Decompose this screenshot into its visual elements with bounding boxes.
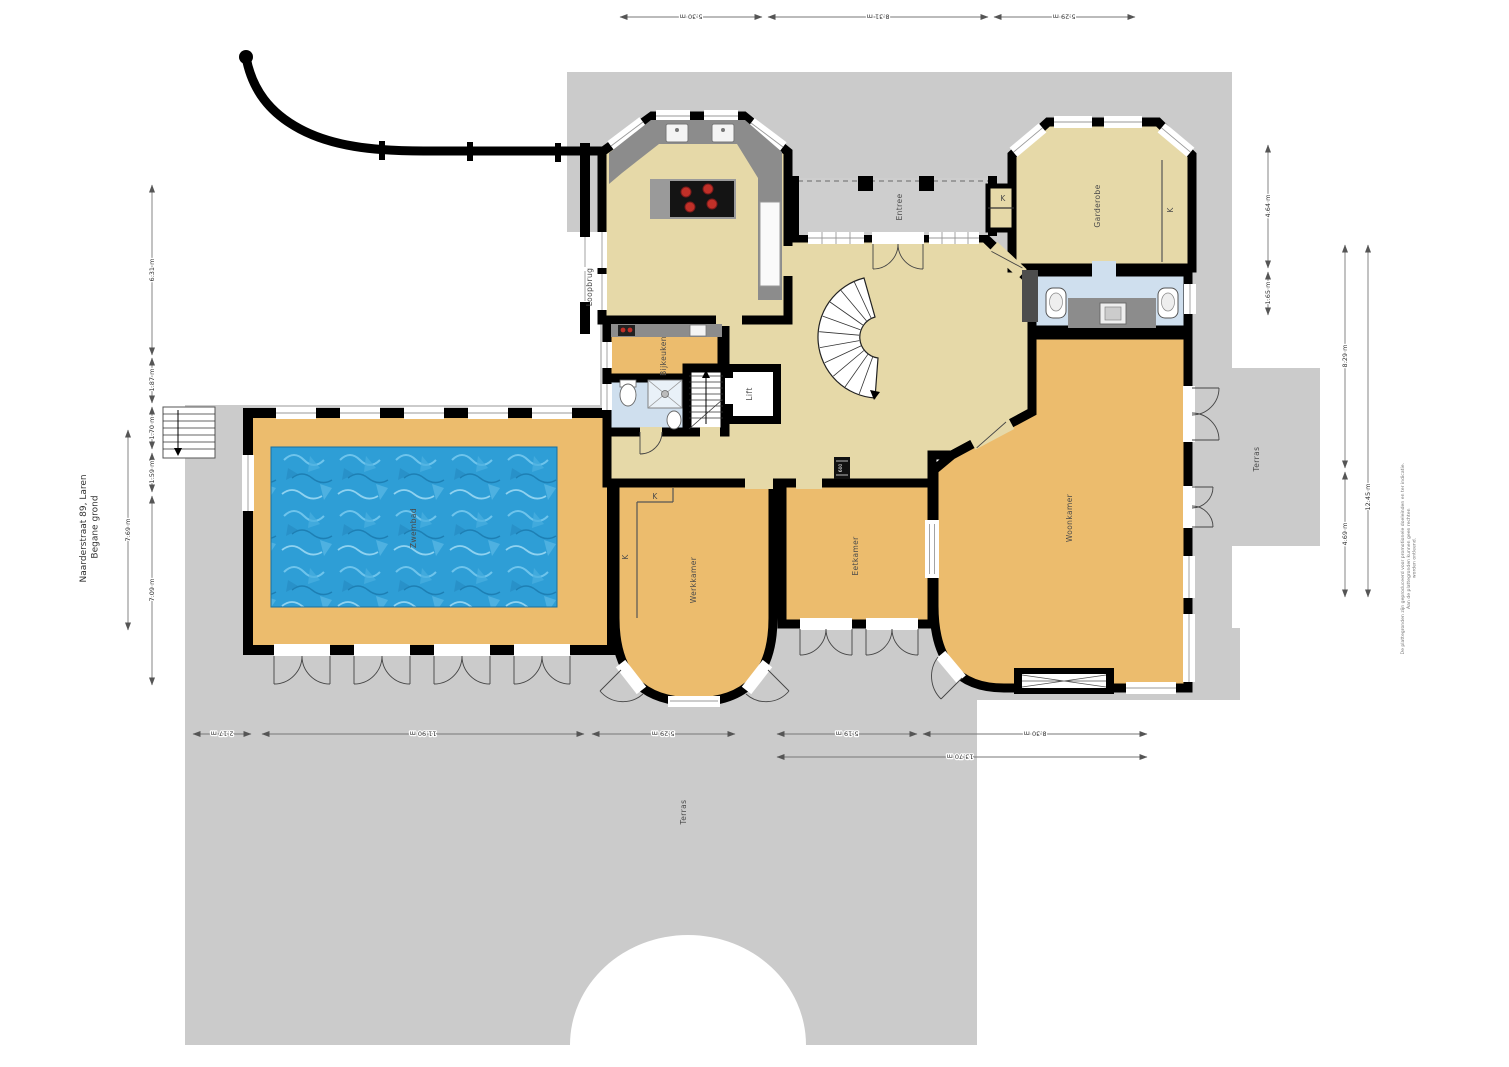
entree-window-left xyxy=(808,232,864,244)
label-loopbrug: Loopbrug xyxy=(585,268,594,307)
label-terras-right: Terras xyxy=(1252,447,1261,473)
dim-top-3: 5.29 m xyxy=(1053,13,1076,21)
dim-bottom-5: 8.30 m xyxy=(1024,730,1047,738)
label-garderobe: Garderobe xyxy=(1093,184,1102,227)
room-garderobe xyxy=(1012,122,1192,268)
fireplace xyxy=(1014,668,1114,694)
porch-column xyxy=(919,176,934,191)
dim-bottom-4: 5.19 m xyxy=(836,730,859,738)
dim-top-2: 8.31 m xyxy=(867,13,890,21)
garden-wall-curve xyxy=(239,50,612,334)
dim-right-2: 1.65 m xyxy=(1264,282,1272,305)
bijkeuken-sink xyxy=(690,325,706,336)
dim-bottom-2: 11.90 m xyxy=(409,730,436,738)
label-zwembad: Zwembad xyxy=(409,508,418,548)
label-werkkamer: Werkkamer xyxy=(689,556,698,603)
boiler-label: 600 xyxy=(838,464,844,473)
dim-top-1: 5.30 m xyxy=(680,13,703,21)
terrace-steps xyxy=(163,407,215,458)
wall-pillar xyxy=(467,142,473,161)
woonkamer-right-windows xyxy=(1183,556,1195,682)
wall-pillar xyxy=(555,143,561,162)
entree-window-right xyxy=(929,232,979,244)
floorplan-drawing: 600 Loopbrug Bijkeuken Lift Entree Garde… xyxy=(0,0,1509,1067)
dim-left-1: 6.31 m xyxy=(148,259,156,282)
wall-pillar xyxy=(379,141,385,160)
dim-right-4: 4.69 m xyxy=(1341,523,1349,546)
kitchen-sink xyxy=(666,124,688,142)
woonkamer-bottom-window xyxy=(1126,682,1176,694)
washbasin xyxy=(667,411,681,429)
dim-left-3: 1.70 m xyxy=(148,417,156,440)
plan-title-floor: Begane grond xyxy=(91,495,101,558)
label-woonkamer: Woonkamer xyxy=(1065,493,1074,542)
plan-title-address: Naarderstraat 89, Laren xyxy=(79,474,89,582)
boiler-600: 600 xyxy=(834,457,850,479)
duct xyxy=(1022,270,1038,322)
dim-right-3: 8.29 m xyxy=(1341,345,1349,368)
dim-left-5: 7.09 m xyxy=(148,579,156,602)
dim-left-outer: 7.69 m xyxy=(124,519,132,542)
pool-house-window-left xyxy=(242,455,254,511)
pool-house xyxy=(242,407,612,684)
label-closet-garderobe-right: K xyxy=(1166,207,1175,213)
dim-right-total: 12.45 m xyxy=(1364,483,1372,510)
label-closet-werkkamer-top: K xyxy=(652,492,658,501)
label-entree: Entree xyxy=(895,194,904,221)
bijkeuken-counter xyxy=(611,324,722,337)
dim-bottom-1: 2.17 m xyxy=(211,730,234,738)
kitchen-sink xyxy=(712,124,734,142)
disclaimer-text: De plattegronden zijn geproduceerd voor … xyxy=(1400,462,1418,655)
kitchen-island-cooktop xyxy=(650,179,736,219)
label-lift: Lift xyxy=(745,387,754,400)
label-bijkeuken: Bijkeuken xyxy=(659,336,668,376)
loopbrug-outer-wall xyxy=(580,143,590,237)
label-eetkamer: Eetkamer xyxy=(851,536,860,576)
toilet xyxy=(620,384,636,406)
sliding-door-eetkamer-woonkamer xyxy=(925,520,939,578)
dim-left-4: 1.59 m xyxy=(148,461,156,484)
label-terras-bottom: Terras xyxy=(679,800,688,826)
dim-left-2: 1.87 m xyxy=(148,369,156,392)
porch-column xyxy=(858,176,873,191)
plan-title: Naarderstraat 89, Laren Begane grond xyxy=(79,472,101,583)
floorplan-page: 600 Loopbrug Bijkeuken Lift Entree Garde… xyxy=(0,0,1509,1067)
label-closet-garderobe-left: K xyxy=(1000,194,1006,203)
wall-end-post xyxy=(239,50,253,64)
shower xyxy=(648,380,682,408)
dim-right-1: 4.64 m xyxy=(1264,195,1272,218)
label-closet-werkkamer-left: K xyxy=(621,554,630,560)
terrace-bottom-with-arch xyxy=(185,700,977,1045)
dim-bottom-3: 5.29 m xyxy=(652,730,675,738)
terrace-right-block xyxy=(1232,368,1320,546)
bijkeuken-stove xyxy=(618,325,635,336)
dim-bottom-total: 13.70 m xyxy=(946,753,973,761)
